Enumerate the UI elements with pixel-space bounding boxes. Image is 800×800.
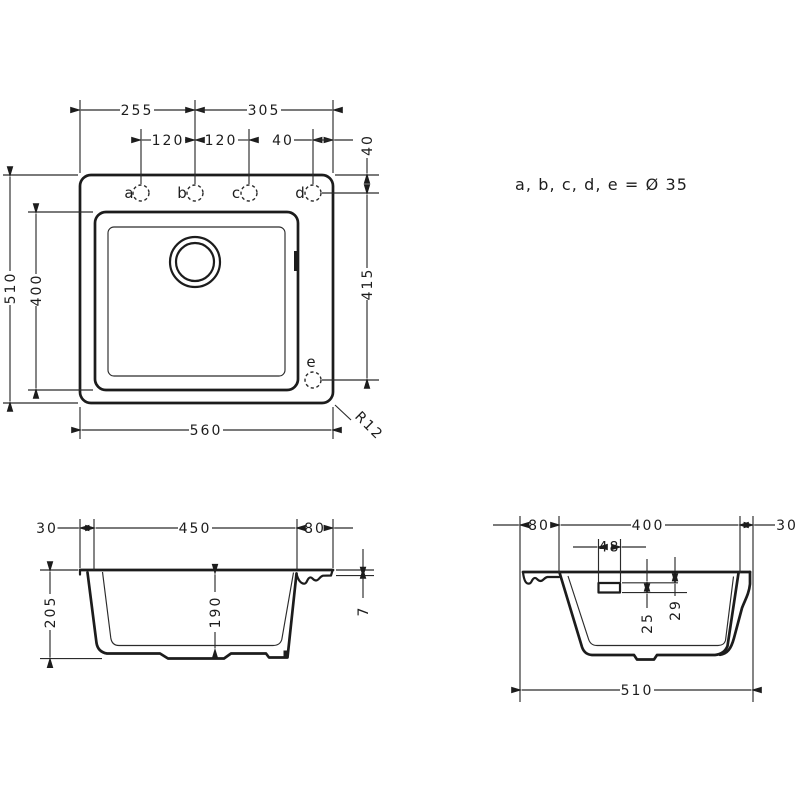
hole-label-a: a <box>124 184 133 202</box>
front-bowl-inner-line <box>103 572 294 646</box>
corner-radius-callout: R12 <box>335 405 386 444</box>
dim-text-205: 205 <box>43 596 59 629</box>
dim-29: 29 <box>668 557 684 621</box>
drain-inner-circle <box>176 243 214 281</box>
dim-text-40-top: 40 <box>360 134 376 156</box>
dim-text-48: 48 <box>599 540 621 556</box>
dim-text-255: 255 <box>121 103 154 119</box>
overflow-mark <box>294 251 298 271</box>
side-deck-underside <box>523 573 559 584</box>
dim-7: 7 <box>356 549 372 616</box>
dim-305: 305 <box>196 103 332 119</box>
side-bowl-inner-line <box>568 576 734 646</box>
front-section-view: 30 450 80 205 190 7 <box>36 519 374 659</box>
tap-hole-a <box>133 185 149 201</box>
sink-outline <box>80 175 333 403</box>
overflow-opening <box>599 583 621 593</box>
dim-40-top-offset: 40 <box>360 134 376 173</box>
dim-415: 415 <box>360 195 376 378</box>
dim-text-30-left: 30 <box>36 521 58 537</box>
dim-text-510: 510 <box>3 272 19 305</box>
dim-text-40-edge: 40 <box>272 133 294 149</box>
dim-text-560: 560 <box>190 423 223 439</box>
bowl-inner-edge <box>108 227 285 376</box>
dim-30-left: 30 <box>36 521 79 537</box>
dim-560: 560 <box>82 423 331 439</box>
dim-450: 450 <box>96 521 295 537</box>
dim-text-400-side: 400 <box>632 518 665 534</box>
hole-label-b: b <box>177 184 187 202</box>
tap-hole-b <box>187 185 203 201</box>
side-extension-lines <box>520 516 753 702</box>
dim-text-120b: 120 <box>205 133 238 149</box>
top-view: a b c d e 255 <box>3 100 688 444</box>
dim-120-a: 120 <box>142 133 194 149</box>
dim-400-bowl: 400 <box>29 214 45 388</box>
dim-25: 25 <box>640 559 656 634</box>
dim-80-right: 80 <box>304 521 353 537</box>
dim-255: 255 <box>81 103 194 119</box>
dim-text-30-front: 30 <box>776 518 798 534</box>
dim-text-120a: 120 <box>152 133 185 149</box>
dim-80-deck: 80 <box>493 518 550 534</box>
hole-label-d: d <box>295 184 305 202</box>
front-deck-underside <box>297 571 333 584</box>
dim-510-depth: 510 <box>3 177 19 401</box>
dim-text-510-side: 510 <box>621 683 654 699</box>
holes-diameter-note: a, b, c, d, e = Ø 35 <box>515 175 688 194</box>
dim-205: 205 <box>43 572 59 658</box>
hole-label-e: e <box>306 353 315 371</box>
tap-hole-e <box>305 372 321 388</box>
dim-text-7: 7 <box>356 606 372 617</box>
dim-190: 190 <box>208 575 224 649</box>
dim-400-side: 400 <box>561 518 738 534</box>
dim-text-415: 415 <box>360 268 376 301</box>
technical-drawing-page: a b c d e 255 <box>0 0 800 800</box>
drain-outer-circle <box>170 237 220 287</box>
dim-text-450: 450 <box>179 521 212 537</box>
bowl-outline <box>95 212 298 390</box>
top-view-extension-lines <box>3 100 379 439</box>
dim-text-400: 400 <box>29 274 45 307</box>
tap-hole-d <box>305 185 321 201</box>
hole-label-c: c <box>232 184 240 202</box>
dim-text-r12: R12 <box>351 409 386 444</box>
dim-text-25: 25 <box>640 612 656 634</box>
dim-48: 48 <box>573 540 646 556</box>
dim-30-front: 30 <box>754 518 798 534</box>
dim-510-side: 510 <box>522 683 751 699</box>
dim-text-80-right: 80 <box>304 521 326 537</box>
side-section-view: 80 400 30 48 29 25 510 <box>493 516 798 702</box>
dim-text-80-deck: 80 <box>528 518 550 534</box>
tap-hole-c <box>241 185 257 201</box>
dim-text-305: 305 <box>248 103 281 119</box>
dim-text-190: 190 <box>208 596 224 629</box>
dim-120-b: 120 <box>196 133 248 149</box>
sink-dimension-drawing: a b c d e 255 <box>0 0 800 800</box>
front-drain-detail <box>284 651 289 658</box>
dim-text-29: 29 <box>668 599 684 621</box>
